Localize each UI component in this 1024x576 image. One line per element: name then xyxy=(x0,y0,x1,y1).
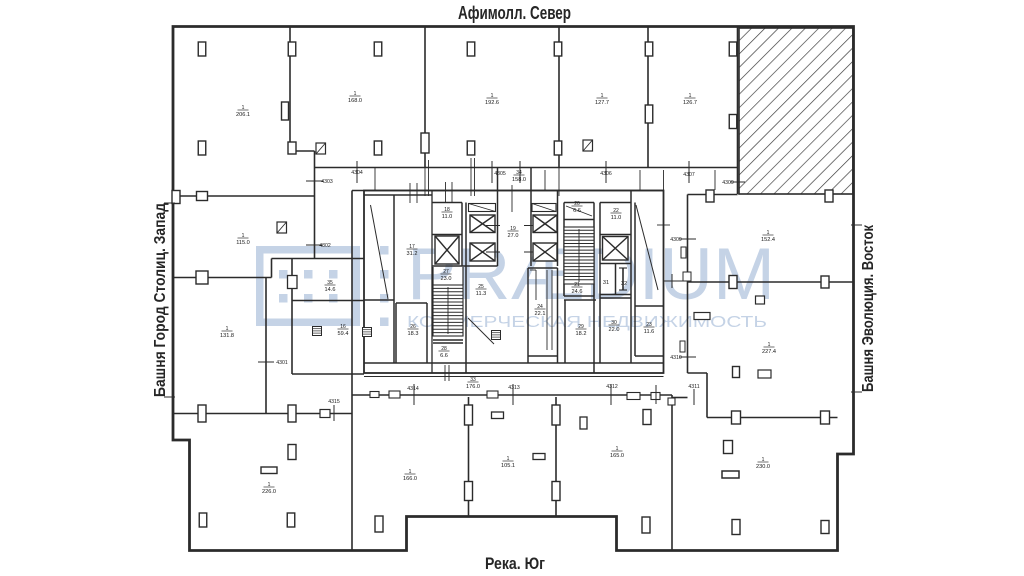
svg-text:4312: 4312 xyxy=(606,384,618,390)
svg-text:11.0: 11.0 xyxy=(442,214,452,220)
svg-text:4305: 4305 xyxy=(494,171,506,177)
svg-text:126.7: 126.7 xyxy=(683,100,697,106)
svg-text:127.7: 127.7 xyxy=(595,100,609,106)
svg-text:105.1: 105.1 xyxy=(501,463,515,469)
svg-text:Башня Эволюция. Восток: Башня Эволюция. Восток xyxy=(860,225,877,392)
svg-text:4302: 4302 xyxy=(319,243,331,249)
svg-text:Башня Город Столиц. Запад: Башня Город Столиц. Запад xyxy=(152,203,169,397)
svg-text:27.0: 27.0 xyxy=(508,233,519,239)
svg-text:59.4: 59.4 xyxy=(338,331,349,337)
svg-text:165.0: 165.0 xyxy=(610,453,624,459)
svg-text:4314: 4314 xyxy=(407,386,419,392)
svg-text:166.0: 166.0 xyxy=(403,476,417,482)
svg-text:152.4: 152.4 xyxy=(761,237,775,243)
svg-text:11.0: 11.0 xyxy=(611,215,621,221)
svg-text:Река. Юг: Река. Юг xyxy=(485,554,545,573)
svg-text:131.8: 131.8 xyxy=(220,333,234,339)
svg-text:4307: 4307 xyxy=(683,172,695,178)
svg-text:11.3: 11.3 xyxy=(476,291,486,297)
svg-text:4304: 4304 xyxy=(351,170,363,176)
svg-text:158.0: 158.0 xyxy=(512,177,526,183)
svg-text:24.6: 24.6 xyxy=(572,289,583,295)
svg-text:32: 32 xyxy=(621,281,627,287)
svg-text:31.2: 31.2 xyxy=(407,251,418,257)
svg-text:192.6: 192.6 xyxy=(485,100,499,106)
svg-text:4309: 4309 xyxy=(722,180,734,186)
svg-text:4310: 4310 xyxy=(670,355,682,361)
svg-text:14.6: 14.6 xyxy=(325,287,336,293)
svg-text:4303: 4303 xyxy=(321,179,333,185)
svg-text:18.2: 18.2 xyxy=(576,331,587,337)
svg-text:Афимолл. Север: Афимолл. Север xyxy=(458,2,571,23)
svg-text:22.1: 22.1 xyxy=(535,311,546,317)
svg-text:4315: 4315 xyxy=(328,399,340,405)
svg-text:226.0: 226.0 xyxy=(262,489,276,495)
svg-text:4306: 4306 xyxy=(600,171,612,177)
svg-text:11.6: 11.6 xyxy=(644,329,654,335)
svg-text:6.6: 6.6 xyxy=(440,353,448,359)
svg-text:31: 31 xyxy=(603,280,609,286)
svg-text:168.0: 168.0 xyxy=(348,98,362,104)
svg-text:230.0: 230.0 xyxy=(756,464,770,470)
svg-text:176.0: 176.0 xyxy=(466,384,480,390)
svg-text:4309: 4309 xyxy=(670,237,682,243)
svg-text:23.0: 23.0 xyxy=(441,276,452,282)
svg-text:4311: 4311 xyxy=(688,384,699,390)
svg-text:206.1: 206.1 xyxy=(236,112,250,118)
svg-text:18.3: 18.3 xyxy=(408,331,419,337)
svg-text:4301: 4301 xyxy=(276,360,288,366)
svg-text:227.4: 227.4 xyxy=(762,349,776,355)
svg-text:22.0: 22.0 xyxy=(609,327,620,333)
svg-text:115.0: 115.0 xyxy=(236,240,250,246)
svg-text:6.6: 6.6 xyxy=(573,208,581,214)
svg-text:4313: 4313 xyxy=(508,385,520,391)
